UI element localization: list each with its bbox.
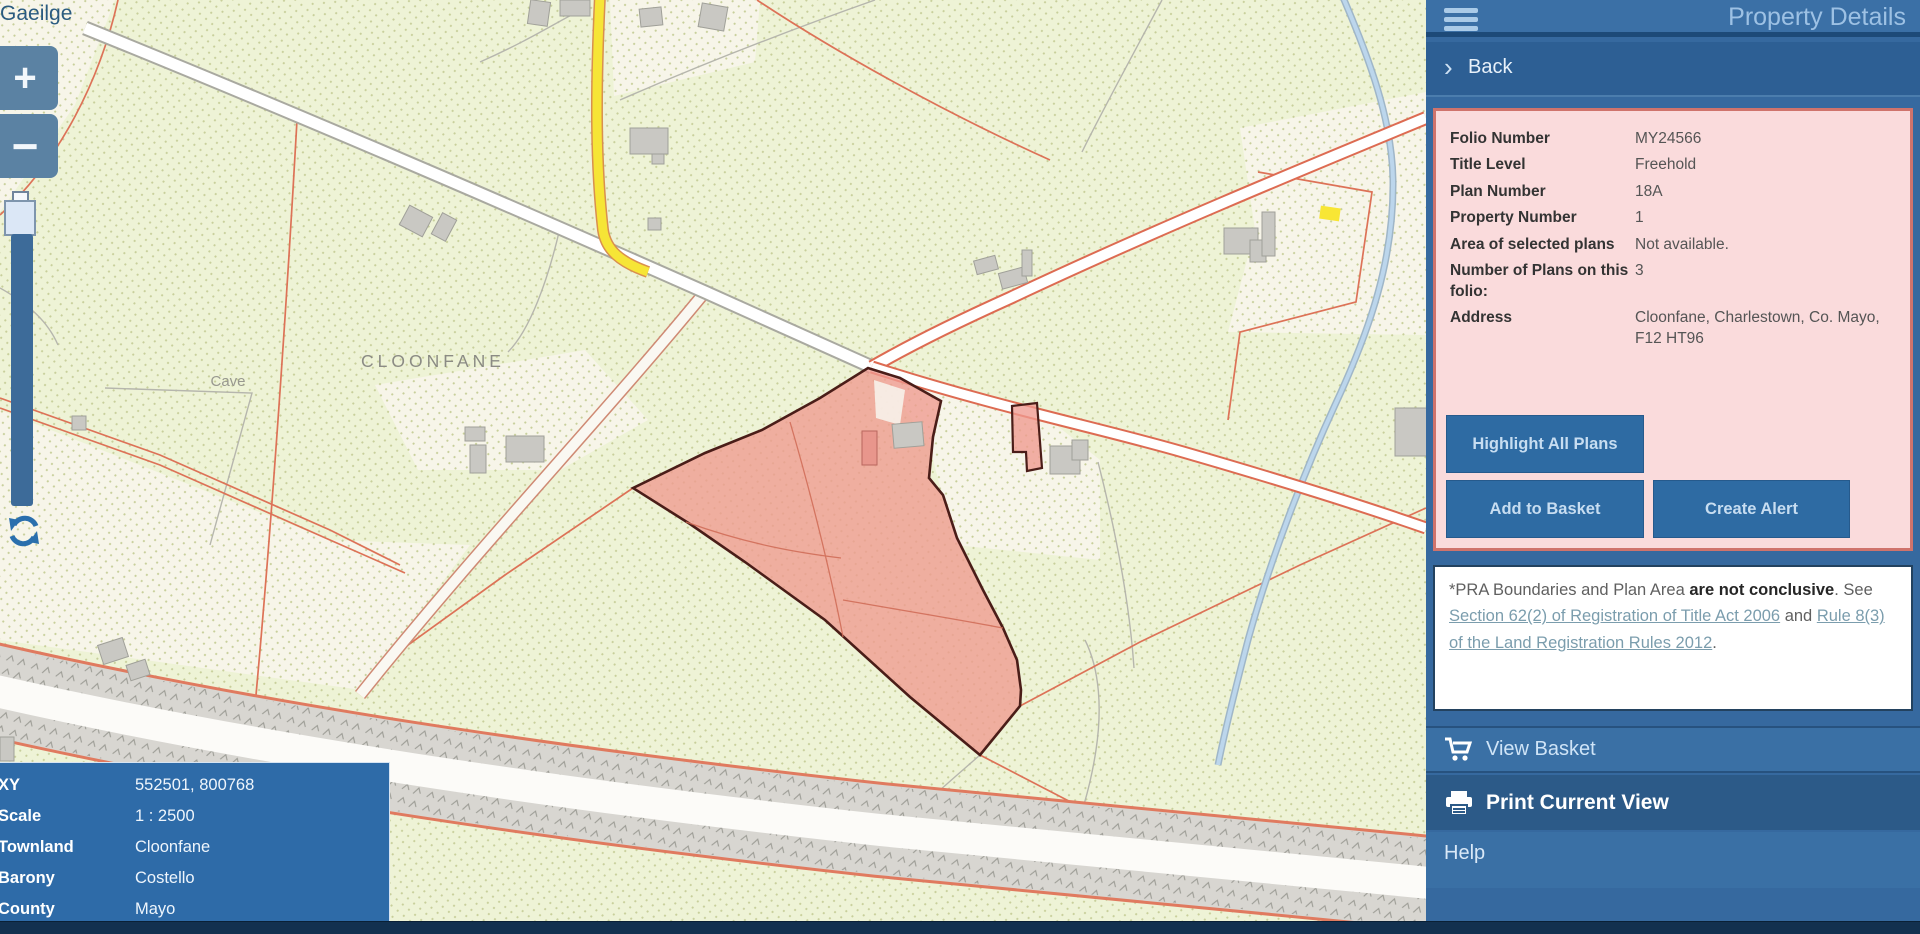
detail-label: Title Level bbox=[1450, 155, 1635, 175]
print-current-view-button[interactable]: Print Current View bbox=[1426, 775, 1920, 830]
detail-row-plan-number: Plan Number 18A bbox=[1450, 182, 1896, 202]
info-row-xy: XY 552501, 800768 bbox=[0, 770, 389, 801]
view-basket-button[interactable]: View Basket bbox=[1426, 726, 1920, 773]
info-row-townland: Townland Cloonfane bbox=[0, 832, 389, 863]
detail-row-title-level: Title Level Freehold bbox=[1450, 155, 1896, 175]
info-label: Barony bbox=[0, 863, 135, 894]
info-label: Townland bbox=[0, 832, 135, 863]
panel-header: Property Details bbox=[1426, 0, 1920, 37]
language-toggle-link[interactable]: Gaeilge bbox=[0, 2, 72, 26]
print-label: Print Current View bbox=[1486, 791, 1669, 815]
info-value: 1 : 2500 bbox=[135, 801, 195, 832]
plan-building-1 bbox=[862, 431, 877, 465]
plan-building-2 bbox=[892, 422, 924, 449]
zoom-in-button[interactable]: + bbox=[0, 46, 58, 110]
map-info-box: XY 552501, 800768 Scale 1 : 2500 Townlan… bbox=[0, 762, 390, 921]
detail-label: Number of Plans on this folio: bbox=[1450, 261, 1635, 302]
info-label: Scale bbox=[0, 801, 135, 832]
detail-value: Cloonfane, Charlestown, Co. Mayo, F12 HT… bbox=[1635, 308, 1896, 349]
detail-label: Plan Number bbox=[1450, 182, 1635, 202]
detail-row-folio: Folio Number MY24566 bbox=[1450, 129, 1896, 149]
chevron-right-icon: › bbox=[1444, 54, 1453, 80]
detail-value: Freehold bbox=[1635, 155, 1896, 175]
townland-label: CLOONFANE bbox=[361, 351, 505, 371]
detail-value: MY24566 bbox=[1635, 129, 1896, 149]
property-details-panel: Property Details › Back Folio Number MY2… bbox=[1426, 0, 1920, 934]
zoom-slider-track[interactable] bbox=[11, 234, 33, 506]
disclaimer-bold: are not conclusive bbox=[1689, 581, 1834, 599]
detail-row-area: Area of selected plans Not available. bbox=[1450, 235, 1896, 255]
back-label: Back bbox=[1468, 56, 1512, 79]
info-value: Cloonfane bbox=[135, 832, 210, 863]
detail-value: Not available. bbox=[1635, 235, 1896, 255]
cart-icon bbox=[1444, 737, 1474, 763]
help-button[interactable]: Help bbox=[1426, 832, 1920, 888]
disclaimer-text: and bbox=[1780, 607, 1817, 625]
view-basket-label: View Basket bbox=[1486, 738, 1596, 761]
detail-row-property-number: Property Number 1 bbox=[1450, 208, 1896, 228]
menu-icon[interactable] bbox=[1444, 8, 1478, 31]
map-yellow-patch bbox=[1319, 206, 1341, 222]
detail-value: 1 bbox=[1635, 208, 1896, 228]
folio-details-card: Folio Number MY24566 Title Level Freehol… bbox=[1433, 108, 1913, 551]
landdirect-map-viewer: CLOONFANE Cave Gaeilge + − XY 552501, 80… bbox=[0, 0, 1920, 934]
detail-label: Folio Number bbox=[1450, 129, 1635, 149]
help-label: Help bbox=[1444, 842, 1485, 865]
detail-label: Address bbox=[1450, 308, 1635, 349]
info-value: Costello bbox=[135, 863, 195, 894]
boundaries-disclaimer: *PRA Boundaries and Plan Area are not co… bbox=[1433, 565, 1913, 711]
disclaimer-text: . See bbox=[1834, 581, 1873, 599]
detail-label: Property Number bbox=[1450, 208, 1635, 228]
detail-row-plan-count: Number of Plans on this folio: 3 bbox=[1450, 261, 1896, 302]
add-to-basket-button[interactable]: Add to Basket bbox=[1446, 480, 1644, 538]
disclaimer-text: *PRA Boundaries and Plan Area bbox=[1449, 581, 1689, 599]
section-62-link[interactable]: Section 62(2) of Registration of Title A… bbox=[1449, 607, 1780, 625]
disclaimer-text: . bbox=[1712, 634, 1717, 652]
create-alert-button[interactable]: Create Alert bbox=[1653, 480, 1850, 538]
info-row-scale: Scale 1 : 2500 bbox=[0, 801, 389, 832]
zoom-out-button[interactable]: − bbox=[0, 114, 58, 178]
panel-title: Property Details bbox=[1728, 3, 1906, 32]
detail-value: 3 bbox=[1635, 261, 1896, 302]
detail-label: Area of selected plans bbox=[1450, 235, 1635, 255]
info-value: 552501, 800768 bbox=[135, 770, 254, 801]
zoom-slider-thumb[interactable] bbox=[4, 200, 36, 236]
refresh-map-icon[interactable] bbox=[6, 512, 42, 550]
detail-value: 18A bbox=[1635, 182, 1896, 202]
info-label: XY bbox=[0, 770, 135, 801]
printer-icon bbox=[1444, 790, 1474, 816]
bottom-status-bar bbox=[0, 921, 1920, 934]
cave-label: Cave bbox=[210, 373, 245, 390]
highlight-all-plans-button[interactable]: Highlight All Plans bbox=[1446, 415, 1644, 473]
info-row-barony: Barony Costello bbox=[0, 863, 389, 894]
detail-row-address: Address Cloonfane, Charlestown, Co. Mayo… bbox=[1450, 308, 1896, 349]
back-button[interactable]: › Back bbox=[1426, 42, 1920, 97]
